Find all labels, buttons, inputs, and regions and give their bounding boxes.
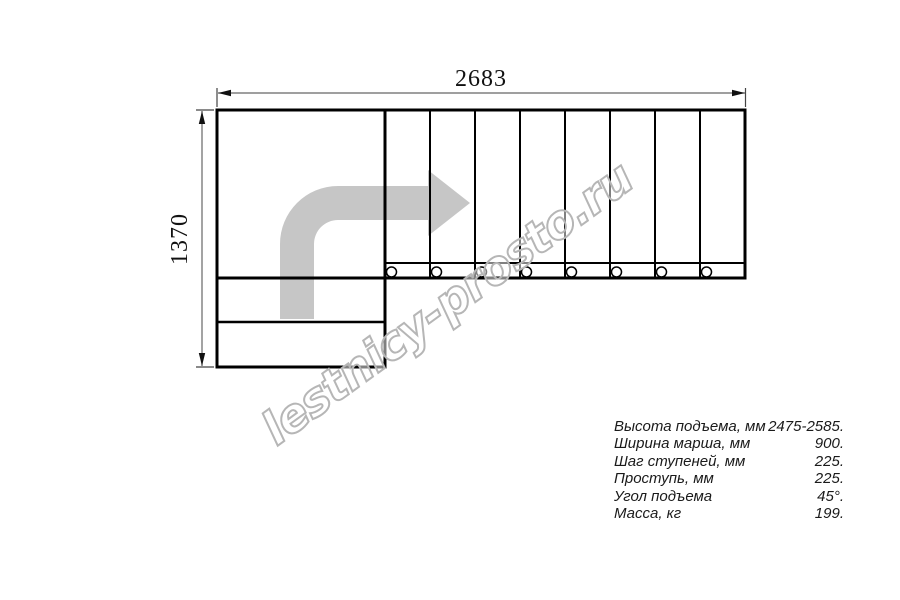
drawing-canvas: 2683 1370 lestnicy-prosto.ru Высота подъ… bbox=[0, 0, 900, 600]
spec-value: 900. bbox=[815, 435, 844, 452]
spec-value: 199. bbox=[815, 505, 844, 522]
spec-row-flight-width: Ширина марша, мм 900. bbox=[614, 435, 844, 452]
spec-row-rise-angle: Угол подъема 45°. bbox=[614, 488, 844, 505]
spec-label: Угол подъема bbox=[614, 488, 712, 505]
spec-value: 2475-2585. bbox=[768, 418, 844, 435]
spec-row-rise-height: Высота подъема, мм 2475-2585. bbox=[614, 418, 844, 435]
spec-label: Шаг ступеней, мм bbox=[614, 453, 745, 470]
spec-value: 225. bbox=[815, 470, 844, 487]
spec-row-tread: Проступь, мм 225. bbox=[614, 470, 844, 487]
spec-row-step-pitch: Шаг ступеней, мм 225. bbox=[614, 453, 844, 470]
spec-label: Проступь, мм bbox=[614, 470, 714, 487]
stringer-circles bbox=[387, 267, 712, 277]
dimension-width-label: 2683 bbox=[455, 66, 507, 92]
spec-label: Ширина марша, мм bbox=[614, 435, 750, 452]
dimension-height-label: 1370 bbox=[167, 213, 193, 265]
dimension-left: 1370 bbox=[167, 110, 214, 367]
spec-value: 225. bbox=[815, 453, 844, 470]
dimension-top: 2683 bbox=[217, 66, 746, 107]
spec-row-mass: Масса, кг 199. bbox=[614, 505, 844, 522]
spec-table: Высота подъема, мм 2475-2585. Ширина мар… bbox=[614, 418, 844, 522]
spec-label: Масса, кг bbox=[614, 505, 681, 522]
spec-label: Высота подъема, мм bbox=[614, 418, 766, 435]
spec-value: 45°. bbox=[817, 488, 844, 505]
